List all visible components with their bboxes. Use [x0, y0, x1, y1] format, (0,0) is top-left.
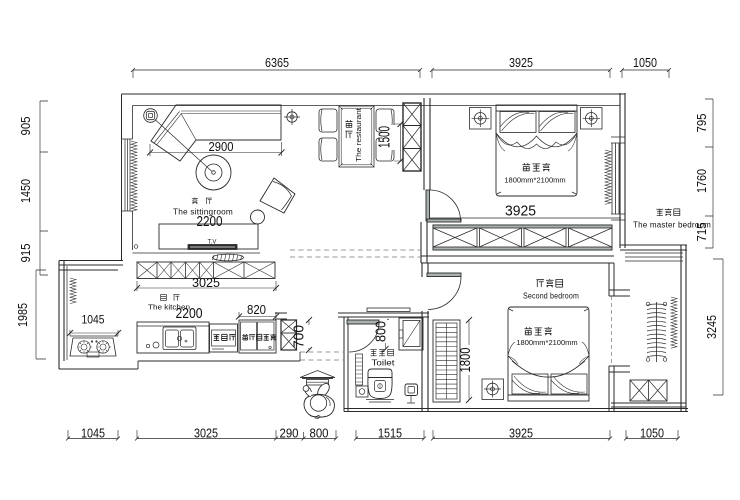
svg-text:Toilet: Toilet [372, 358, 396, 368]
svg-text:905: 905 [18, 117, 33, 136]
svg-text:The sittingroom: The sittingroom [173, 208, 233, 217]
svg-text:700: 700 [291, 325, 308, 348]
svg-text:The master bedroom: The master bedroom [633, 221, 711, 230]
svg-text:1800: 1800 [457, 348, 474, 373]
svg-text:1515: 1515 [378, 426, 402, 441]
svg-text:3925: 3925 [509, 55, 533, 70]
svg-text:3025: 3025 [194, 426, 218, 441]
svg-text:1050: 1050 [640, 426, 664, 441]
svg-text:1500: 1500 [377, 126, 394, 148]
svg-text:2900: 2900 [209, 139, 234, 154]
svg-text:820: 820 [247, 303, 266, 317]
svg-text:Second bedroom: Second bedroom [523, 292, 579, 301]
svg-text:3925: 3925 [505, 204, 536, 220]
svg-text:795: 795 [694, 114, 709, 133]
svg-text:1045: 1045 [81, 426, 105, 441]
svg-text:290: 290 [280, 426, 299, 441]
svg-text:3245: 3245 [704, 315, 719, 339]
svg-text:800: 800 [373, 321, 390, 342]
svg-text:T.V: T.V [208, 240, 217, 246]
svg-text:800: 800 [310, 426, 329, 441]
svg-text:6365: 6365 [265, 55, 289, 70]
svg-text:3925: 3925 [509, 426, 533, 441]
svg-text:The restaurant: The restaurant [354, 107, 363, 162]
svg-text:2200: 2200 [176, 305, 203, 322]
svg-text:1450: 1450 [18, 179, 33, 203]
svg-text:1800mm*2100mm: 1800mm*2100mm [504, 176, 565, 185]
svg-text:1050: 1050 [633, 55, 657, 70]
svg-text:1760: 1760 [694, 169, 709, 193]
svg-text:3025: 3025 [192, 276, 220, 290]
svg-text:1985: 1985 [15, 303, 30, 327]
svg-text:1045: 1045 [82, 313, 105, 327]
svg-text:915: 915 [18, 244, 33, 263]
svg-text:1800mm*2100mm: 1800mm*2100mm [516, 338, 577, 347]
